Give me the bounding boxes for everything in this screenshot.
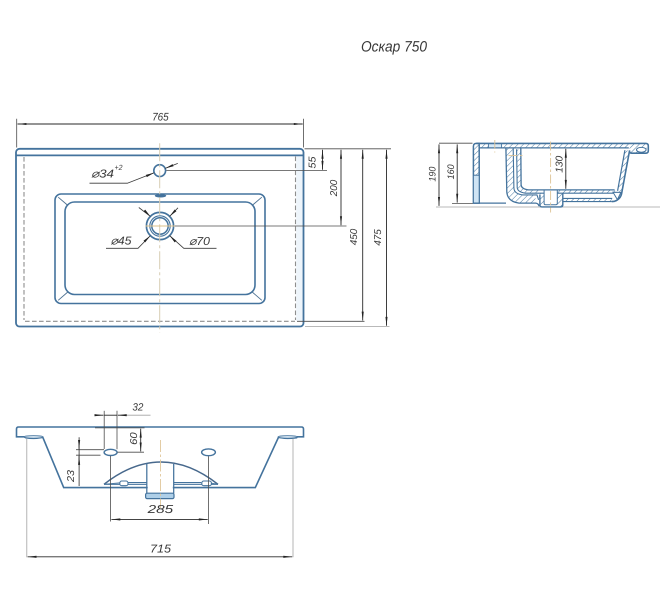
svg-text:130: 130 xyxy=(554,155,565,172)
svg-text:+2: +2 xyxy=(115,163,124,172)
svg-text:285: 285 xyxy=(146,504,174,516)
svg-text:55: 55 xyxy=(308,156,319,168)
svg-text:⌀70: ⌀70 xyxy=(189,236,211,248)
svg-text:23: 23 xyxy=(66,470,77,484)
svg-text:32: 32 xyxy=(132,402,143,414)
svg-text:715: 715 xyxy=(150,544,172,556)
svg-text:Оскар 750: Оскар 750 xyxy=(361,39,428,56)
svg-text:190: 190 xyxy=(428,166,439,182)
svg-text:200: 200 xyxy=(329,179,340,197)
svg-text:⌀34: ⌀34 xyxy=(91,169,114,181)
svg-text:160: 160 xyxy=(446,164,457,180)
svg-text:⌀45: ⌀45 xyxy=(111,236,133,248)
svg-text:60: 60 xyxy=(129,432,140,445)
svg-text:450: 450 xyxy=(349,228,360,245)
svg-text:765: 765 xyxy=(152,112,169,124)
svg-text:475: 475 xyxy=(373,229,384,246)
